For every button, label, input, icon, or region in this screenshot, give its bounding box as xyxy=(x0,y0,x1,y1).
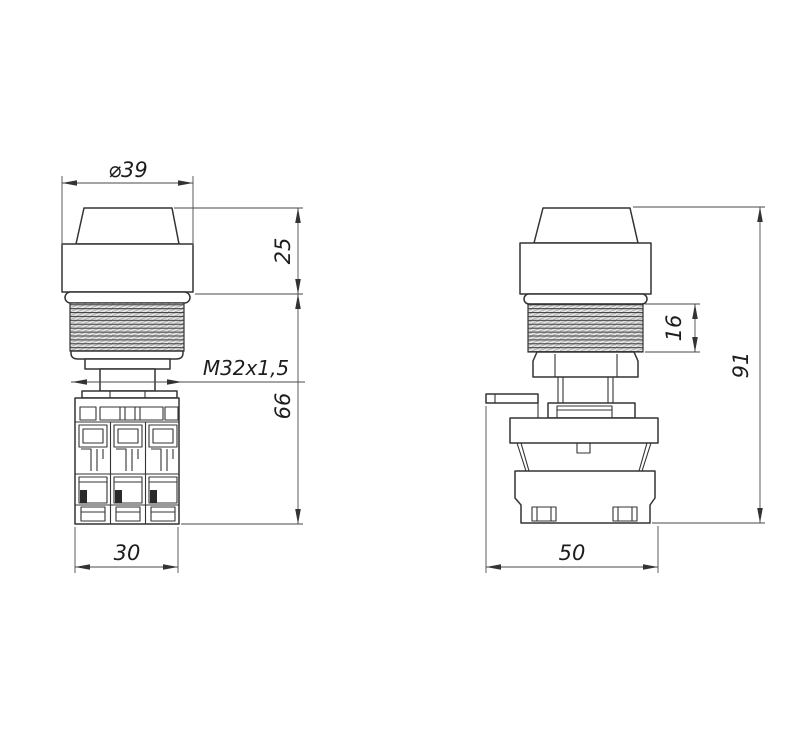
side-thread-section xyxy=(528,304,643,352)
front-contact-block xyxy=(75,398,179,524)
front-bezel-body xyxy=(62,244,193,292)
dim-label-body-height: 66 xyxy=(271,393,295,420)
side-flange xyxy=(524,294,647,304)
technical-drawing: ⌀39 25 M32x1,5 66 30 16 91 xyxy=(0,0,800,732)
side-mounting-tab xyxy=(486,394,538,418)
dim-label-thread-length: 16 xyxy=(662,315,686,342)
side-bezel-body xyxy=(520,243,651,294)
dim-label-housing-width: 50 xyxy=(559,541,586,565)
side-housing-plate xyxy=(510,418,658,443)
dimension-block-width-30: 30 xyxy=(75,527,178,573)
dim-label-thread: M32x1,5 xyxy=(203,356,289,380)
dimension-body-height-66: 66 xyxy=(181,294,303,524)
dim-label-total-height: 91 xyxy=(729,352,753,379)
front-view xyxy=(62,208,193,524)
front-thread-section xyxy=(70,303,184,351)
side-snap-clips xyxy=(517,443,651,471)
drawing-canvas: ⌀39 25 M32x1,5 66 30 16 91 xyxy=(0,0,800,732)
side-collar xyxy=(548,403,635,418)
dimension-thread-length-16: 16 xyxy=(645,304,700,352)
side-button-cap xyxy=(534,208,638,243)
dim-label-head-height: 25 xyxy=(271,238,295,265)
side-mounting-nut xyxy=(533,352,638,377)
side-lower-housing xyxy=(515,471,655,523)
front-block-plate xyxy=(82,391,177,398)
side-stem xyxy=(558,377,613,403)
front-thread-runout xyxy=(71,351,183,359)
front-button-cap xyxy=(76,208,179,244)
front-stem xyxy=(100,369,155,391)
front-step xyxy=(85,359,170,369)
dim-label-block-width: 30 xyxy=(114,541,141,565)
dim-label-diameter: ⌀39 xyxy=(108,158,147,182)
front-flange xyxy=(65,292,190,303)
side-view xyxy=(486,208,658,523)
